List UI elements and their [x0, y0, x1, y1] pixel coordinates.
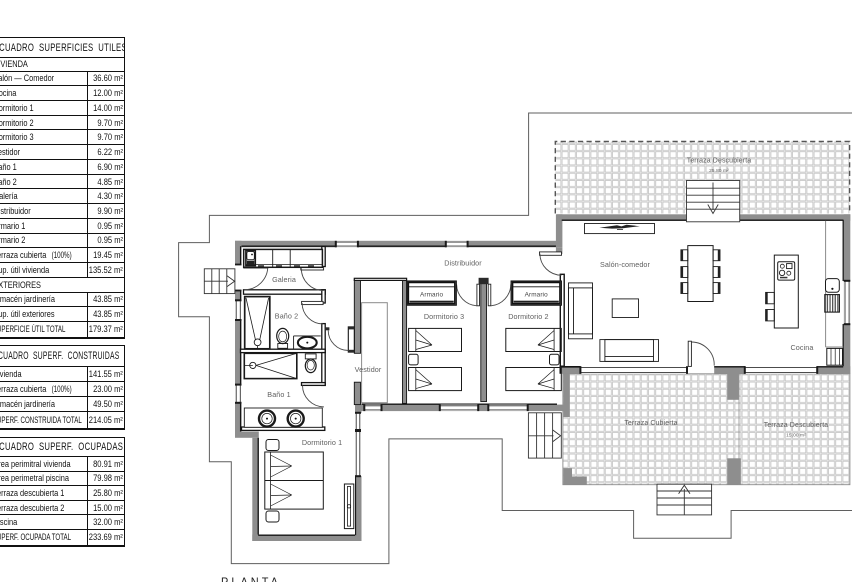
svg-text:Galeria: Galeria [272, 275, 296, 284]
svg-text:Salón-comedor: Salón-comedor [600, 260, 651, 269]
svg-text:Baño 1: Baño 1 [267, 390, 290, 399]
svg-text:Armario: Armario [420, 291, 443, 298]
svg-text:Terraza Descubierta: Terraza Descubierta [687, 158, 752, 165]
svg-text:Dormitorio 2: Dormitorio 2 [508, 312, 548, 321]
svg-text:Armario: Armario [525, 291, 548, 298]
svg-text:Distribuidor: Distribuidor [444, 259, 482, 268]
svg-text:Terraza Descubierta: Terraza Descubierta [764, 422, 829, 429]
svg-text:Vestidor: Vestidor [355, 365, 382, 374]
svg-text:Baño 2: Baño 2 [275, 312, 298, 321]
svg-text:15.00 m²: 15.00 m² [786, 433, 806, 439]
svg-text:Dormitorio 1: Dormitorio 1 [302, 438, 342, 447]
svg-text:Dormitorio 3: Dormitorio 3 [424, 312, 464, 321]
svg-text:25.80 m²: 25.80 m² [709, 168, 729, 174]
svg-text:Cocina: Cocina [791, 343, 814, 352]
svg-text:Terraza Cubierta: Terraza Cubierta [624, 420, 677, 427]
